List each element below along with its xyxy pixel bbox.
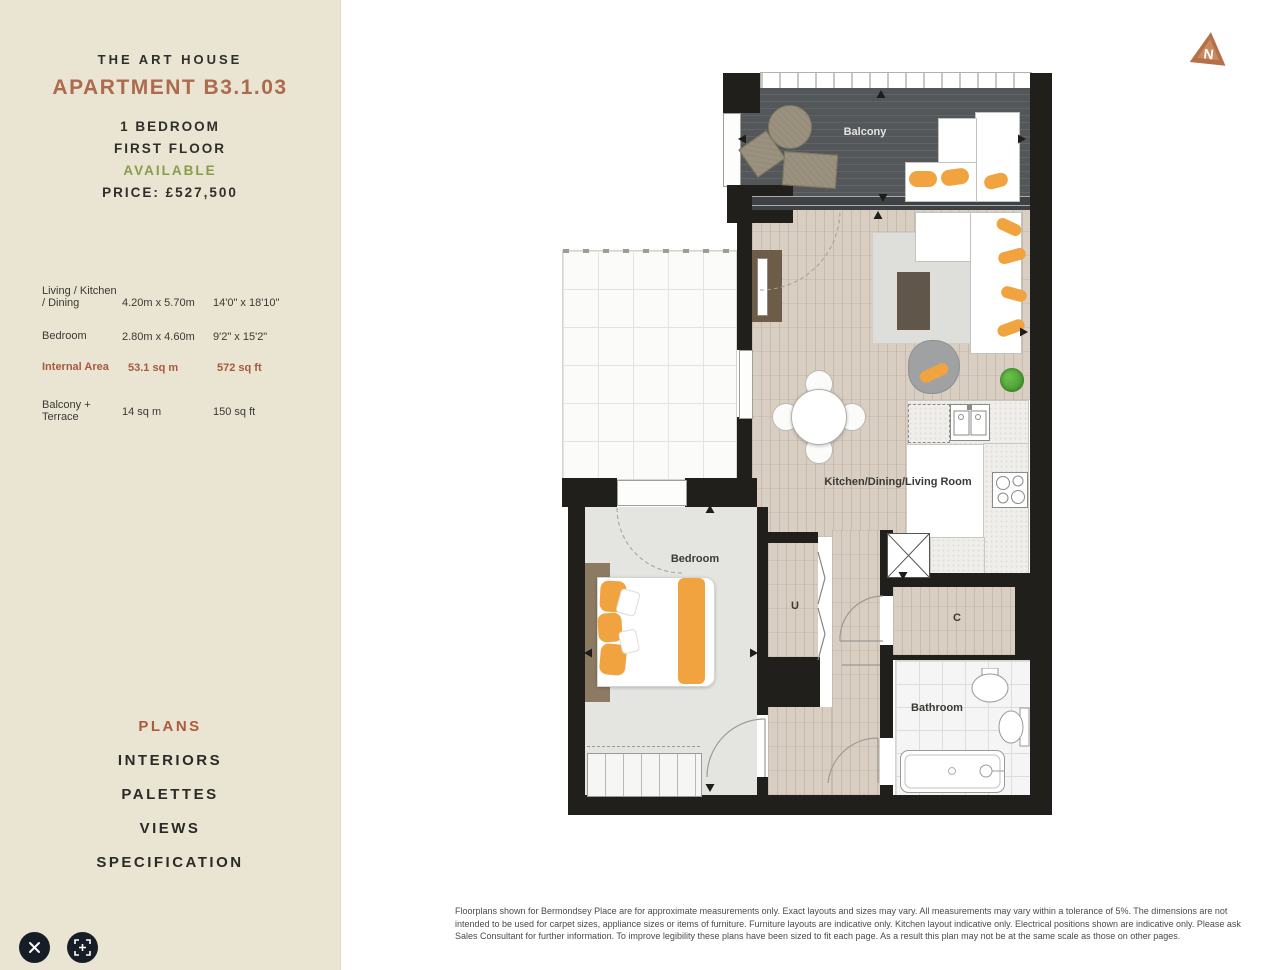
zoom-button[interactable] (67, 932, 98, 963)
room-name: Bedroom (42, 331, 118, 343)
cupboard-door-swing (840, 596, 883, 665)
metric-size: 4.20m x 5.70m (122, 297, 212, 309)
imperial-size: 572 sq ft (217, 362, 316, 374)
price: PRICE: £527,500 (0, 185, 340, 200)
cupboard-label: C (953, 612, 961, 624)
bathroom-label: Bathroom (911, 702, 963, 714)
imperial-size: 9'2" x 15'2" (213, 331, 312, 343)
apartment-title: APARTMENT B3.1.03 (0, 76, 340, 100)
room-name: Balcony + Terrace (42, 400, 118, 423)
bedroom-count: 1 BEDROOM (0, 119, 340, 134)
zoom-in-icon (74, 939, 91, 956)
nav-item-interiors[interactable]: INTERIORS (0, 752, 340, 769)
nav-item-plans[interactable]: PLANS (0, 718, 340, 735)
disclaimer-text: Floorplans shown for Bermondsey Place ar… (455, 905, 1250, 943)
brand-logo-icon: N (1188, 28, 1230, 68)
bifold-door (818, 552, 825, 660)
nav-item-views[interactable]: VIEWS (0, 820, 340, 837)
bathroom-door-swing (828, 738, 878, 783)
room-name: Living / Kitchen / Dining (42, 286, 118, 309)
imperial-size: 14'0" x 18'10" (213, 297, 312, 309)
nav-item-specification[interactable]: SPECIFICATION (0, 854, 340, 871)
nav-item-palettes[interactable]: PALETTES (0, 786, 340, 803)
balcony-door-swing (760, 210, 840, 290)
logo-letter: N (1203, 45, 1215, 62)
balcony-label: Balcony (844, 126, 887, 138)
dimension-arrows (584, 90, 1028, 792)
floor-level: FIRST FLOOR (0, 141, 340, 156)
brand-logo: N (1188, 28, 1230, 73)
plan-annotations (560, 68, 1060, 818)
utility-label: U (791, 600, 799, 612)
room-name: Internal Area (42, 362, 118, 374)
close-button[interactable] (19, 932, 50, 963)
bedroom-label: Bedroom (671, 553, 719, 565)
metric-size: 14 sq m (122, 406, 212, 418)
close-icon (27, 940, 42, 955)
metric-size: 2.80m x 4.60m (122, 331, 212, 343)
living-room-label: Kitchen/Dining/Living Room (824, 476, 971, 488)
floorplan-canvas[interactable]: Balcony Kitchen/Dining/Living Room Bedro… (560, 68, 1060, 818)
sidebar: THE ART HOUSE APARTMENT B3.1.03 1 BEDROO… (0, 0, 341, 970)
imperial-size: 150 sq ft (213, 406, 312, 418)
bedroom-door-swing (707, 719, 765, 777)
development-name: THE ART HOUSE (0, 52, 340, 67)
metric-size: 53.1 sq m (128, 362, 218, 374)
status-badge: AVAILABLE (0, 163, 340, 178)
